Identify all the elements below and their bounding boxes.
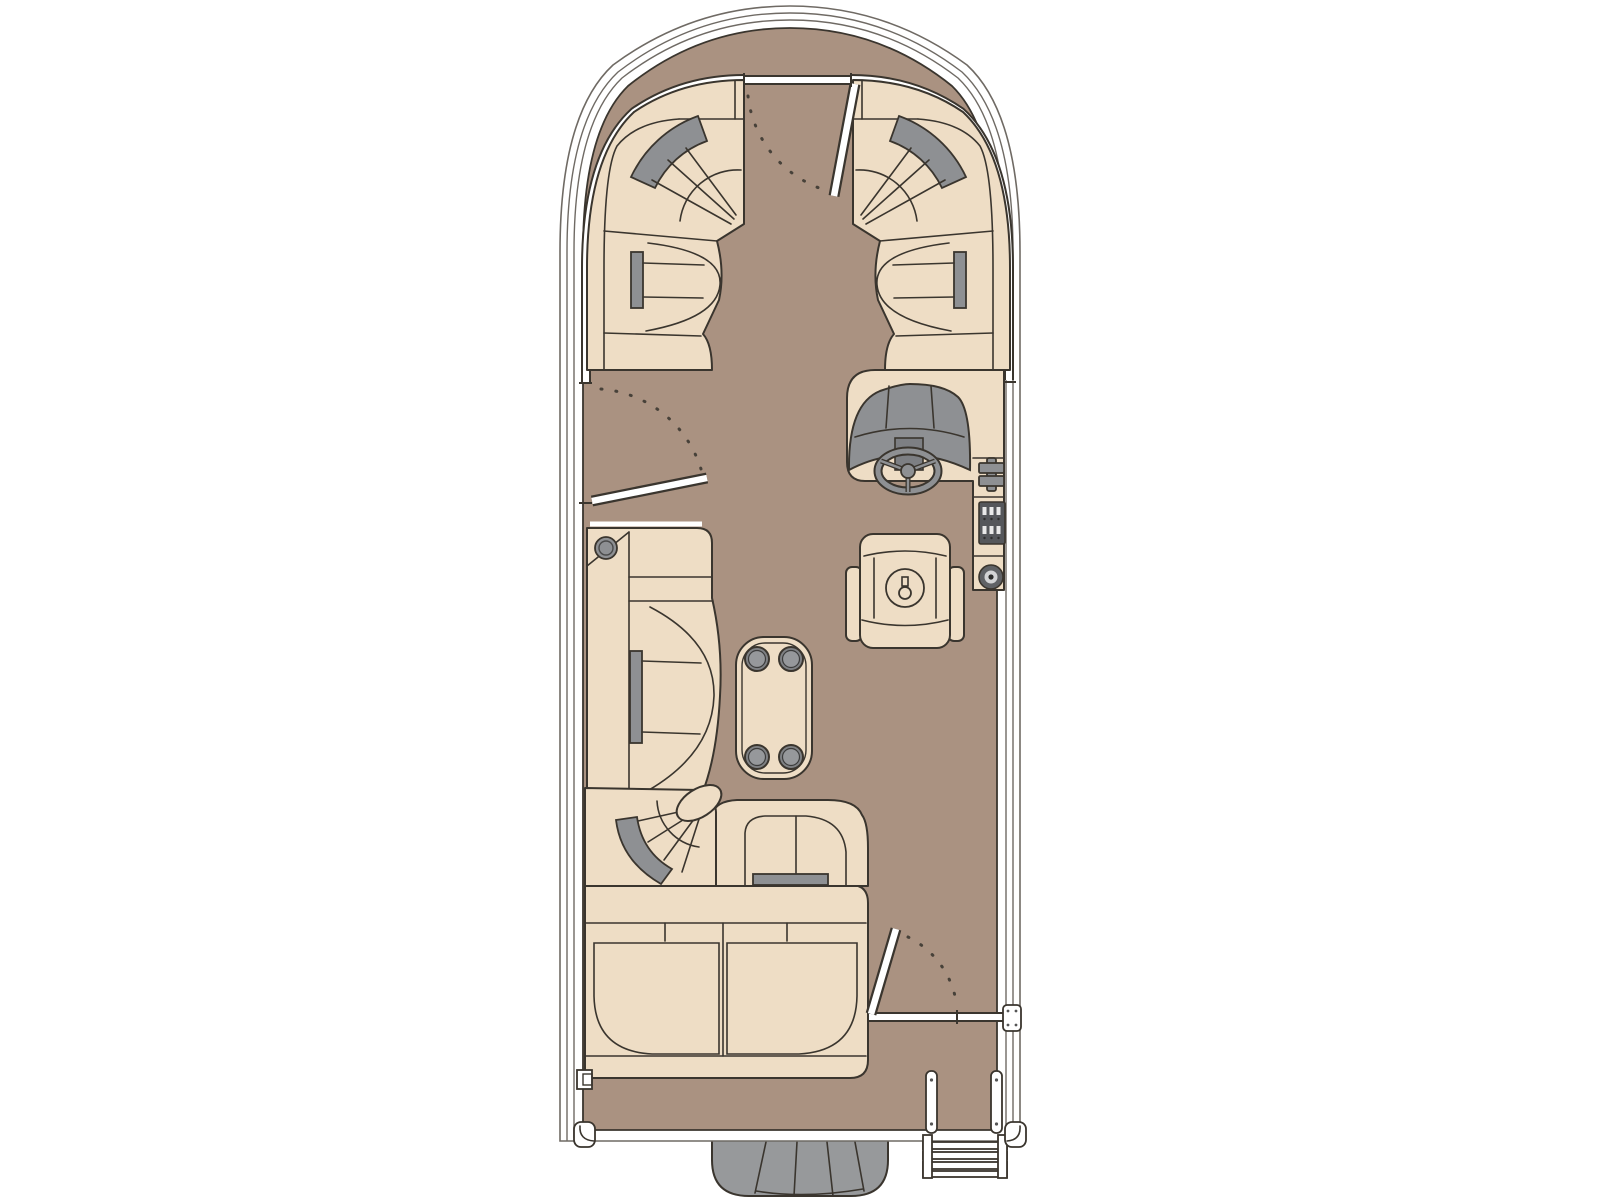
stern-corner-bracket-right [1005,1122,1026,1147]
seat-seam [643,297,703,298]
port-cleat [577,1070,592,1089]
lumbar-gray [630,651,642,743]
stern-corner-wedge [585,778,728,886]
ladder-rung [923,1162,1007,1169]
lumbar-gray [631,252,643,308]
pontoon-floor-plan [0,0,1600,1200]
cup-holder [595,537,617,559]
switch-panel[interactable] [979,502,1005,544]
chaise-base [587,528,721,800]
aft-facing-seat [712,800,868,886]
stern-bench [585,885,868,1078]
cocktail-table [736,637,812,779]
helm-gauge [979,565,1003,589]
port-chaise-lounge [587,524,721,800]
floor-plan-stage [0,0,1600,1200]
stern-rail-bracket [1003,1005,1021,1031]
ladder-rung [923,1171,1007,1177]
stern-corner-bracket-left [574,1122,595,1147]
wheel-hub [901,464,915,478]
aft-seat-lumbar-gray [753,874,828,885]
ladder-rail [923,1135,932,1178]
ladder-rung [923,1142,1007,1149]
captains-chair[interactable] [846,534,964,648]
ladder-rung [923,1152,1007,1159]
